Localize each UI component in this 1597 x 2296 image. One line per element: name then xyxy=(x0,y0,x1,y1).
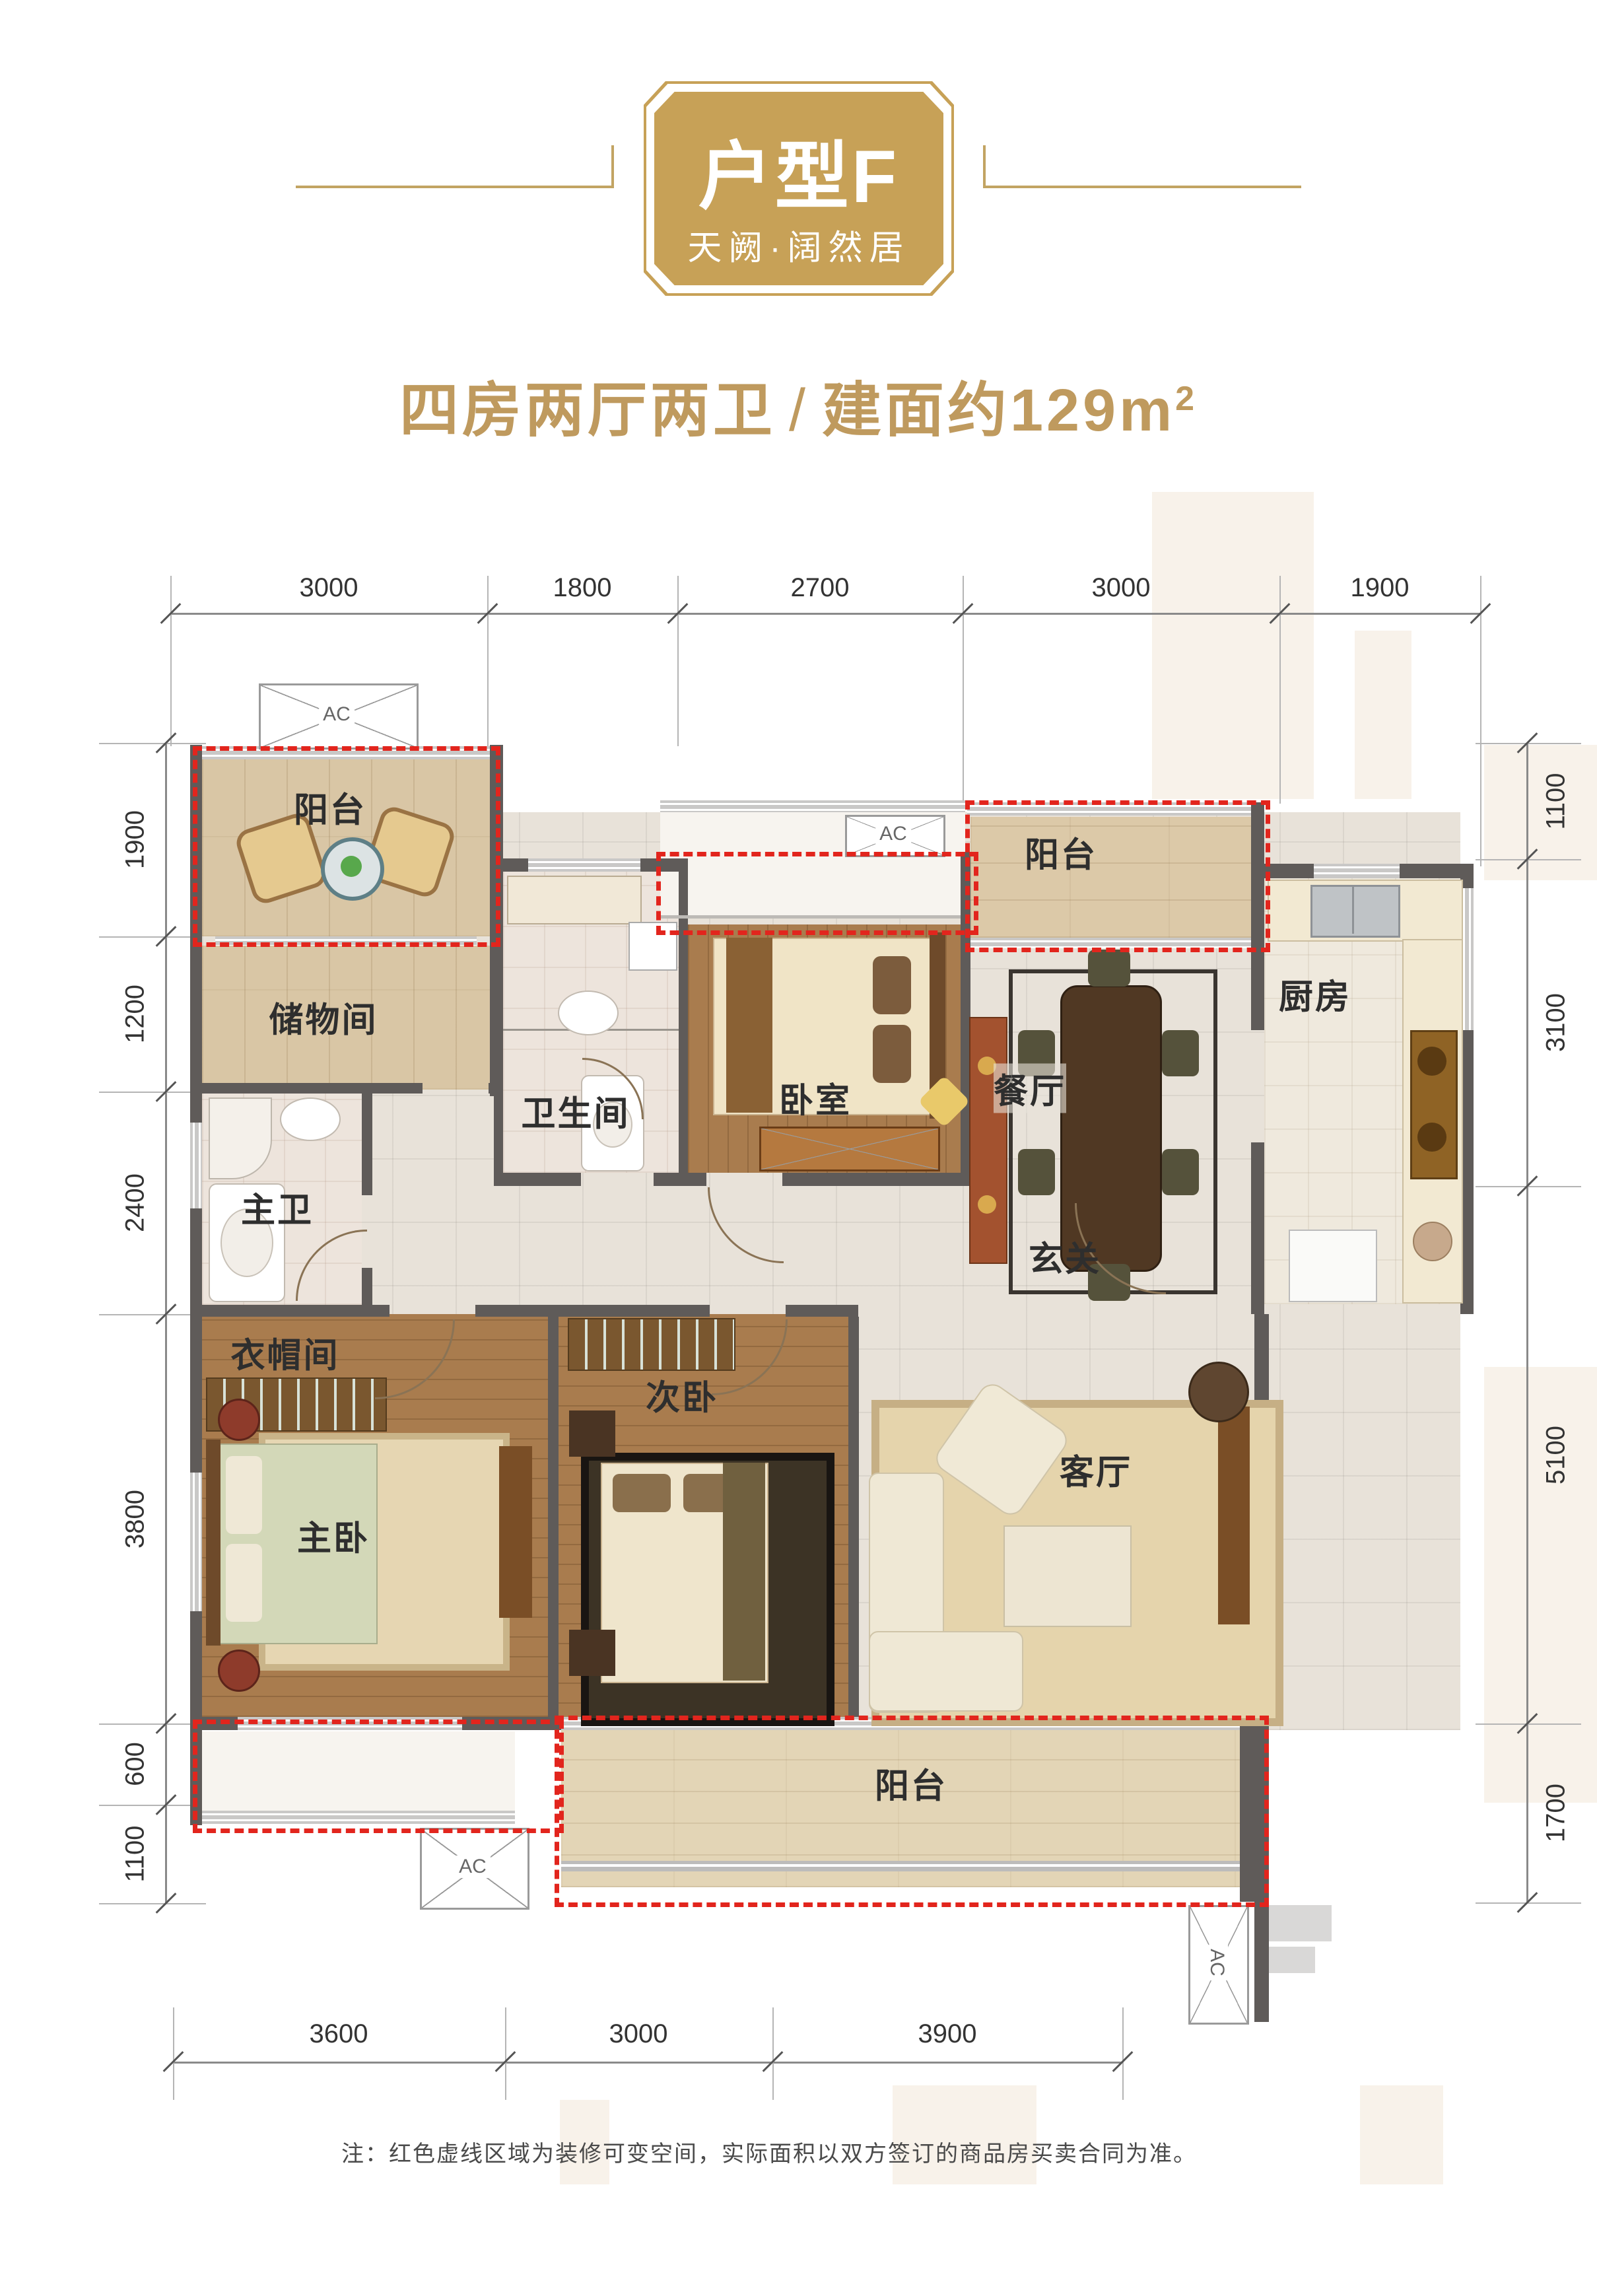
room-label-master-bedroom: 主卧 xyxy=(297,1511,370,1560)
dim-label-bottom: 3000 xyxy=(586,2019,691,2049)
extension-line xyxy=(1480,576,1481,866)
dim-label-top: 3000 xyxy=(1068,573,1174,603)
bed-blanket xyxy=(726,938,772,1113)
plan-summary: 四房两厅两卫/建面约129m2 xyxy=(0,362,1597,448)
wall xyxy=(1251,944,1264,1030)
wall xyxy=(782,1173,970,1186)
pillow xyxy=(226,1456,262,1534)
wall xyxy=(1251,1142,1264,1314)
title-badge: 户型F 天阙·阔然居 xyxy=(644,81,954,296)
room-label-dining: 餐厅 xyxy=(994,1064,1066,1113)
extension-line xyxy=(173,2007,174,2100)
burner xyxy=(1417,1047,1446,1076)
headboard xyxy=(206,1440,221,1646)
plan-title: 户型F xyxy=(644,117,954,224)
dim-line-left xyxy=(165,743,167,1903)
toilet xyxy=(558,991,619,1035)
bay-window xyxy=(660,800,965,812)
ac-unit-label: AC xyxy=(455,1856,491,1878)
bedside-lamp xyxy=(569,1630,615,1676)
room-label-kitchen: 厨房 xyxy=(1279,969,1351,1019)
sideboard-plate xyxy=(978,1195,996,1214)
window xyxy=(190,1123,202,1208)
extension-line xyxy=(487,576,489,746)
header-tick-right xyxy=(983,145,986,188)
dim-label-left: 2400 xyxy=(121,1150,151,1256)
background-pattern xyxy=(893,2085,1036,2184)
extension-line xyxy=(677,576,679,746)
pillow xyxy=(613,1474,671,1512)
room-label-living-room: 客厅 xyxy=(1060,1445,1132,1494)
dim-label-top: 2700 xyxy=(767,573,873,603)
sideboard xyxy=(969,1017,1007,1264)
dim-label-bottom: 3600 xyxy=(286,2019,391,2049)
dining-chair xyxy=(1162,1149,1199,1195)
dim-label-right: 1700 xyxy=(1542,1760,1571,1866)
room-label-balcony-ne: 阳台 xyxy=(1025,827,1097,877)
wall xyxy=(494,1173,581,1186)
wall xyxy=(190,1083,423,1094)
header-line-right xyxy=(984,186,1301,188)
background-pattern xyxy=(1152,492,1314,799)
room-label-bathroom: 卫生间 xyxy=(521,1086,630,1136)
wall xyxy=(848,1317,859,1723)
convertible-zone xyxy=(656,852,978,935)
fridge xyxy=(1289,1230,1377,1302)
dining-chair xyxy=(1088,950,1130,987)
background-pattern xyxy=(1355,631,1411,799)
dim-line-top xyxy=(170,613,1480,615)
header-line-left xyxy=(296,186,613,188)
nightstand xyxy=(218,1399,260,1441)
wall xyxy=(548,1317,559,1723)
window xyxy=(528,858,640,872)
dim-label-top: 3000 xyxy=(276,573,382,603)
background-pattern xyxy=(1484,1367,1597,1803)
ac-unit-label: AC xyxy=(1206,1945,1228,1980)
tv-cabinet xyxy=(1218,1407,1250,1624)
header-tick-left xyxy=(611,145,614,188)
dim-label-right: 1100 xyxy=(1542,749,1571,854)
floorplan-page: 户型F 天阙·阔然居 四房两厅两卫/建面约129m2 3000 1800 270… xyxy=(0,0,1597,2296)
extension-line xyxy=(772,2007,774,2100)
summary-rooms: 四房两厅两卫 xyxy=(399,378,776,444)
convertible-zone xyxy=(193,1720,564,1833)
summary-divider: / xyxy=(789,378,809,444)
tv-bench xyxy=(499,1446,532,1618)
pillow xyxy=(873,956,911,1014)
room-label-balcony-s: 阳台 xyxy=(875,1758,947,1808)
wall xyxy=(786,1305,858,1317)
convertible-zone xyxy=(555,1716,1269,1907)
room-label-foyer: 玄关 xyxy=(1029,1232,1101,1281)
extension-line xyxy=(1122,2007,1124,2100)
bedside-lamp xyxy=(569,1410,615,1457)
dim-label-right: 3100 xyxy=(1542,970,1571,1076)
summary-area-sup: 2 xyxy=(1175,380,1198,418)
dining-chair xyxy=(1162,1030,1199,1076)
pillow xyxy=(873,1025,911,1083)
extension-line xyxy=(505,2007,506,2100)
room-label-bedroom: 卧室 xyxy=(779,1073,852,1123)
toilet xyxy=(280,1097,341,1141)
ac-unit-label: AC xyxy=(319,703,355,726)
room-label-cloakroom: 衣帽间 xyxy=(230,1328,339,1377)
bath-counter xyxy=(507,876,642,924)
wall xyxy=(475,1305,560,1317)
kitchen-sink xyxy=(1310,885,1400,938)
nightstand xyxy=(218,1650,260,1692)
dim-label-bottom: 3900 xyxy=(895,2019,1000,2049)
extension-line xyxy=(170,576,172,746)
dim-label-left: 1100 xyxy=(121,1801,151,1907)
room-label-master-bath: 主卫 xyxy=(241,1183,314,1232)
room-label-second-bedroom: 次卧 xyxy=(646,1370,718,1420)
wardrobe xyxy=(568,1318,735,1371)
dim-label-left: 3800 xyxy=(121,1467,151,1572)
room-label-storage: 储物间 xyxy=(269,992,378,1042)
dim-label-left: 1900 xyxy=(121,787,151,893)
step xyxy=(1269,1947,1315,1973)
convertible-zone xyxy=(965,800,1270,952)
kitchen-sink-divider xyxy=(1352,885,1354,934)
dim-label-right: 5100 xyxy=(1542,1403,1571,1508)
wall xyxy=(654,1173,706,1186)
side-table xyxy=(1188,1362,1249,1422)
kitchen-bowl xyxy=(1413,1222,1452,1261)
wall xyxy=(362,1093,372,1195)
dim-label-left: 1200 xyxy=(121,961,151,1067)
room-label-balcony-nw: 阳台 xyxy=(294,783,366,832)
dim-label-top: 1900 xyxy=(1327,573,1433,603)
plan-subtitle: 天阙·阔然居 xyxy=(644,220,954,269)
dim-label-top: 1800 xyxy=(529,573,635,603)
wall xyxy=(560,1305,710,1317)
dining-chair xyxy=(1018,1149,1055,1195)
coffee-table xyxy=(1003,1525,1132,1627)
dim-line-bottom xyxy=(173,2062,1124,2064)
ac-unit-label: AC xyxy=(875,823,911,845)
window xyxy=(190,1473,202,1611)
footnote: 注：红色虚线区域为装修可变空间，实际面积以双方签订的商品房买卖合同为准。 xyxy=(341,2136,1197,2168)
burner xyxy=(1417,1123,1446,1152)
dim-line-right xyxy=(1526,743,1528,1903)
wall xyxy=(489,1083,503,1094)
wall xyxy=(190,1305,390,1317)
pillow xyxy=(226,1544,262,1622)
step xyxy=(1269,1905,1332,1941)
extension-line xyxy=(99,743,206,744)
sofa-chaise xyxy=(869,1631,1023,1712)
extension-line xyxy=(99,1903,206,1904)
background-pattern xyxy=(1360,2085,1443,2184)
bed-blanket xyxy=(723,1463,765,1681)
summary-area: 建面约129m xyxy=(822,378,1175,444)
bedroom-bench xyxy=(759,1127,940,1171)
convertible-zone xyxy=(193,746,500,947)
window xyxy=(1314,864,1400,878)
